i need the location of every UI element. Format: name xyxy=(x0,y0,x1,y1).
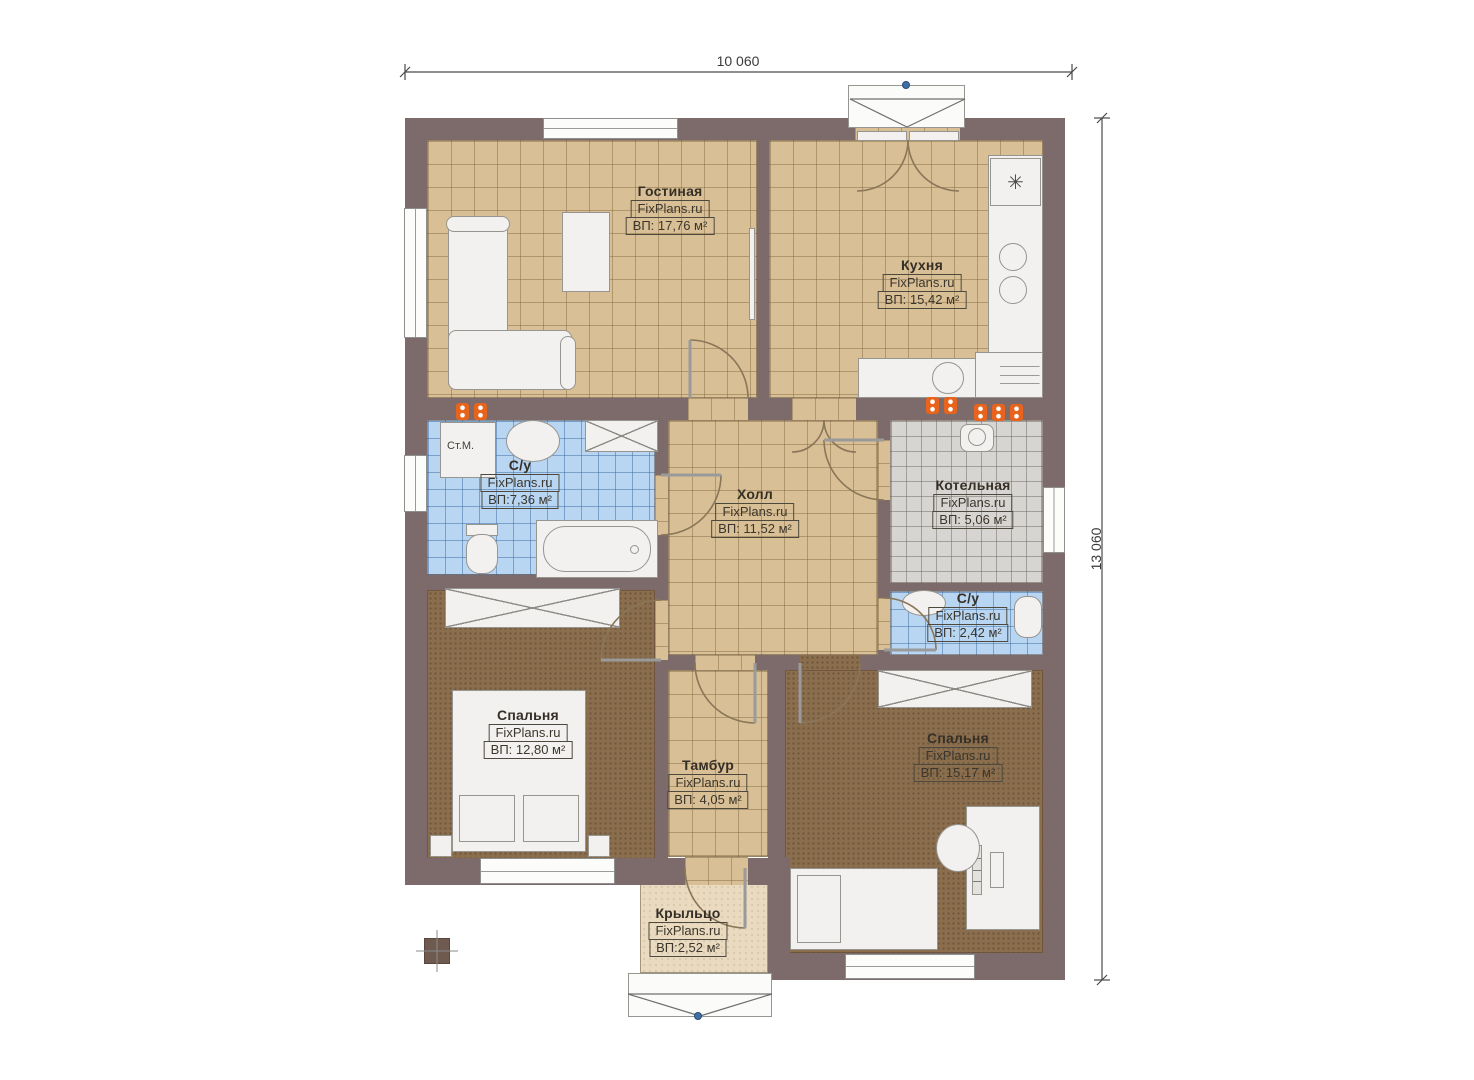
room-brand: FixPlans.ru xyxy=(668,774,747,792)
radiator-3b xyxy=(992,404,1005,421)
entrance-canopy xyxy=(848,85,965,128)
room-brand: FixPlans.ru xyxy=(882,274,961,292)
radiator-2a xyxy=(926,397,939,414)
sofa-chaise xyxy=(448,330,572,390)
radiator-3a xyxy=(974,404,987,421)
porch-door-opening xyxy=(685,857,748,885)
washing-machine-label: Ст.М. xyxy=(447,440,474,452)
room-name: Тамбур xyxy=(682,757,734,773)
smallbath-toilet xyxy=(1014,596,1042,638)
room-label-smallbath: С/у FixPlans.ru ВП: 2,42 м² xyxy=(927,590,1008,642)
kitchen-sink-bowl-2 xyxy=(999,276,1027,304)
room-area: ВП: 4,05 м² xyxy=(667,791,748,809)
keyboard xyxy=(990,852,1004,888)
room-label-vestibule: Тамбур FixPlans.ru ВП: 4,05 м² xyxy=(667,757,748,809)
room-area: ВП: 2,42 м² xyxy=(927,624,1008,642)
room-label-bedroom2: Спальня FixPlans.ru ВП: 15,17 м² xyxy=(914,730,1003,782)
window-bedroom2-bottom xyxy=(845,954,975,979)
room-area: ВП: 17,76 м² xyxy=(626,217,715,235)
room-label-porch: Крыльцо FixPlans.ru ВП:2,52 м² xyxy=(648,905,727,957)
boiler-door-opening xyxy=(878,440,890,500)
boiler-sink-bowl xyxy=(968,428,986,446)
sofa-armrest-right xyxy=(560,336,576,390)
room-label-hall: Холл FixPlans.ru ВП: 11,52 м² xyxy=(711,486,799,538)
room-area: ВП:7,36 м² xyxy=(481,491,559,509)
bed1-pillow-right xyxy=(523,795,579,842)
bed1-pillow-left xyxy=(459,795,515,842)
room-name: С/у xyxy=(509,457,531,473)
bathroom-sink xyxy=(506,420,560,462)
kitchen-sink-bowl-1 xyxy=(999,243,1027,271)
oven xyxy=(975,352,1043,398)
room-name: Котельная xyxy=(935,477,1010,493)
room-name: Кухня xyxy=(901,257,943,273)
bathroom-cabinet xyxy=(585,420,658,452)
cooktop-vent: ✳ xyxy=(990,158,1041,206)
radiator-1a xyxy=(456,403,469,420)
kitchen-round-sink xyxy=(932,362,964,394)
room-brand: FixPlans.ru xyxy=(480,474,559,492)
room-label-bathroom: С/у FixPlans.ru ВП:7,36 м² xyxy=(480,457,559,509)
room-name: Гостиная xyxy=(638,183,703,199)
room-brand: FixPlans.ru xyxy=(928,607,1007,625)
window-boiler-right xyxy=(1043,487,1065,553)
wall-bedroom1-vestibule xyxy=(655,660,668,863)
vestibule-door-opening xyxy=(695,655,755,670)
window-living-left xyxy=(404,208,427,338)
smallbath-door-opening xyxy=(878,598,890,650)
wall-mid-b xyxy=(748,398,792,420)
room-brand: FixPlans.ru xyxy=(918,747,997,765)
wall-hall-bottom-c xyxy=(860,655,1043,670)
room-area: ВП:2,52 м² xyxy=(649,939,727,957)
entrance-door-leaf-right xyxy=(909,131,959,141)
bedroom1-door-opening xyxy=(655,600,668,660)
room-name: С/у xyxy=(957,590,979,606)
window-living-top xyxy=(543,118,678,139)
room-area: ВП: 15,17 м² xyxy=(914,764,1003,782)
window-bathroom-left xyxy=(404,455,427,512)
room-brand: FixPlans.ru xyxy=(488,724,567,742)
wall-hall-boiler-b xyxy=(878,500,890,598)
room-name: Спальня xyxy=(497,707,559,723)
dimension-width-label: 10 060 xyxy=(717,53,760,69)
room-brand: FixPlans.ru xyxy=(648,922,727,940)
room-name: Холл xyxy=(737,486,773,502)
porch-marker-dot xyxy=(694,1012,702,1020)
sofa-armrest-top xyxy=(446,216,510,232)
room-label-living: Гостиная FixPlans.ru ВП: 17,76 м² xyxy=(626,183,715,235)
vent-icon: ✳ xyxy=(1007,170,1024,195)
toilet-bowl xyxy=(466,534,498,574)
wall-top xyxy=(405,118,1065,140)
room-area: ВП: 11,52 м² xyxy=(711,520,799,538)
room-area: ВП: 15,42 м² xyxy=(878,291,967,309)
tv-panel xyxy=(749,228,755,320)
desk-chair xyxy=(936,824,980,872)
wall-living-kitchen xyxy=(757,140,769,398)
wardrobe-bedroom1 xyxy=(445,588,620,628)
room-label-kitchen: Кухня FixPlans.ru ВП: 15,42 м² xyxy=(878,257,967,309)
coffee-table xyxy=(562,212,610,292)
radiator-2b xyxy=(944,397,957,414)
room-area: ВП: 12,80 м² xyxy=(484,741,573,759)
wall-hall-boiler-a xyxy=(878,420,890,440)
room-name: Спальня xyxy=(927,730,989,746)
dimension-height-label: 13 060 xyxy=(1088,528,1104,571)
kitchen-counter-bottom xyxy=(858,358,988,398)
room-label-boiler: Котельная FixPlans.ru ВП: 5,06 м² xyxy=(932,477,1013,529)
site-pillar xyxy=(424,938,450,964)
window-bedroom1-bottom xyxy=(480,858,615,884)
living-hall-opening xyxy=(688,398,748,420)
room-area: ВП: 5,06 м² xyxy=(932,511,1013,529)
radiator-1b xyxy=(474,403,487,420)
radiator-3c xyxy=(1010,404,1023,421)
kitchen-hall-opening xyxy=(792,398,856,420)
bedroom2-door-opening xyxy=(800,655,860,670)
wall-vestibule-bedroom2 xyxy=(768,670,785,857)
bed2-pillow xyxy=(797,875,841,943)
floor-plan-page: { "title": "Floor plan", "dimensions": {… xyxy=(0,0,1474,1080)
room-brand: FixPlans.ru xyxy=(630,200,709,218)
entrance-marker-dot xyxy=(902,81,910,89)
porch-steps xyxy=(628,973,772,1017)
wardrobe-bedroom2 xyxy=(878,670,1032,708)
entrance-door-leaf-left xyxy=(857,131,907,141)
room-name: Крыльцо xyxy=(655,905,720,921)
wall-hall-bottom-b xyxy=(755,655,800,670)
nightstand-left xyxy=(430,835,452,857)
room-brand: FixPlans.ru xyxy=(933,494,1012,512)
room-brand: FixPlans.ru xyxy=(715,503,794,521)
bathtub-drain xyxy=(630,545,639,554)
room-label-bedroom1: Спальня FixPlans.ru ВП: 12,80 м² xyxy=(484,707,573,759)
nightstand-right xyxy=(588,835,610,857)
